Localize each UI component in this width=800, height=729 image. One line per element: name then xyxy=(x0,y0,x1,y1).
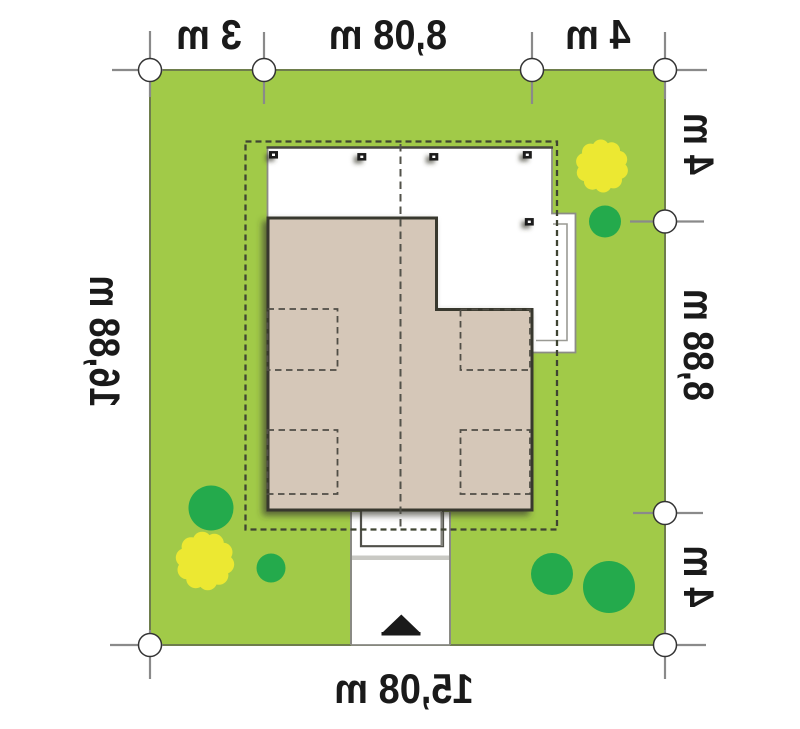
svg-text:4 m: 4 m xyxy=(674,113,721,175)
svg-text:15,08 m: 15,08 m xyxy=(334,666,473,712)
svg-text:4 m: 4 m xyxy=(565,12,630,58)
svg-text:16,88 m: 16,88 m xyxy=(80,275,127,407)
svg-text:8,88 m: 8,88 m xyxy=(674,289,721,401)
svg-text:3 m: 3 m xyxy=(176,12,241,58)
svg-text:8,08 m: 8,08 m xyxy=(329,12,447,58)
svg-text:4 m: 4 m xyxy=(674,545,721,607)
